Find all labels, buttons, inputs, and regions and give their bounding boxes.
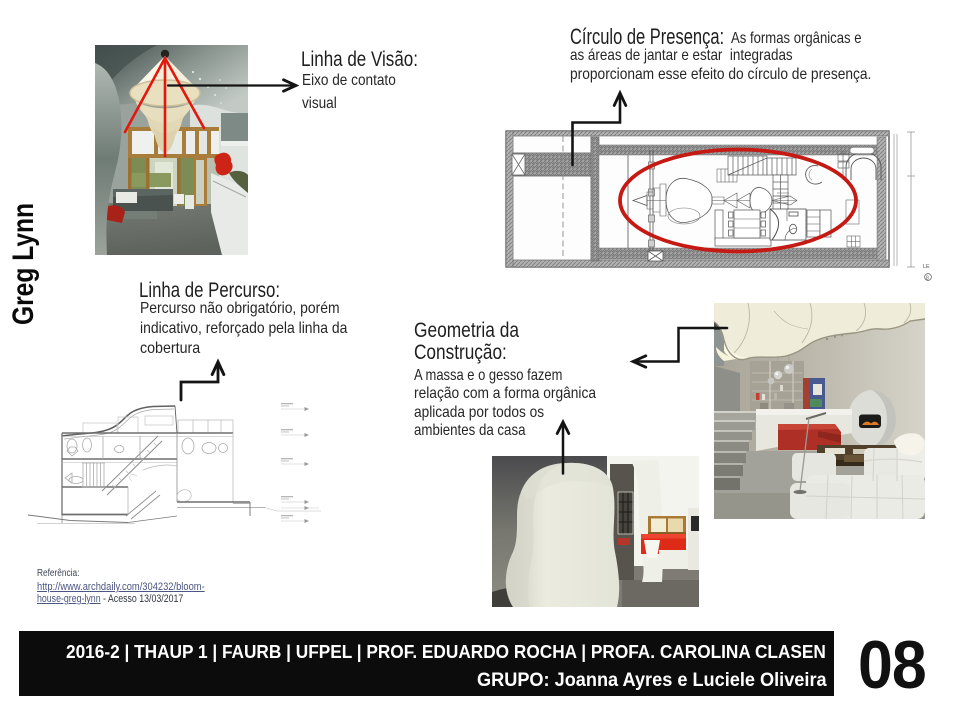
svg-text:8: 8 [926, 276, 929, 282]
svg-text:LE: LE [923, 264, 930, 270]
